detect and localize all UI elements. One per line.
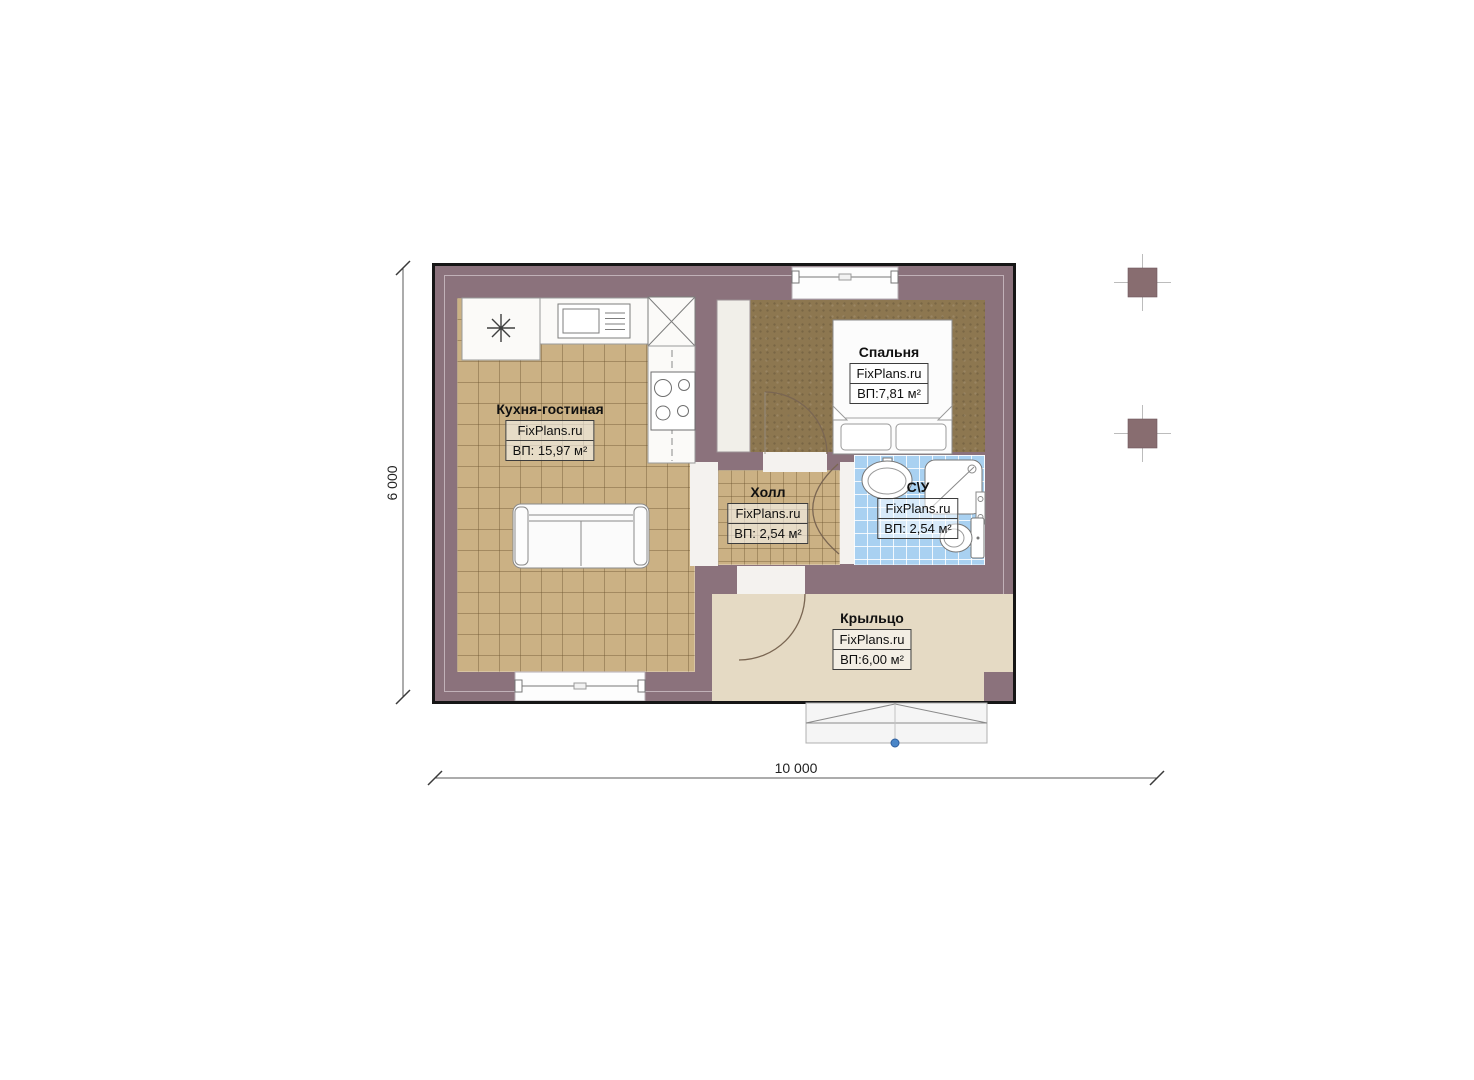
doorway-bathroom [840,462,854,564]
room-label-kitchen: Кухня-гостиная FixPlans.ru ВП: 15,97 м² [496,401,603,461]
site-column-1 [1114,254,1171,311]
opening-living-hall [690,462,718,566]
room-name: Спальня [849,344,928,360]
entrance-steps [806,703,987,747]
watermark: FixPlans.ru [878,499,957,518]
watermark-box: FixPlans.ru ВП: 2,54 м² [727,503,808,544]
room-name: Крыльцо [832,610,911,626]
room-name: С\У [877,479,958,495]
floor-plan-page: Кухня-гостиная FixPlans.ru ВП: 15,97 м² … [0,0,1474,1080]
room-name: Холл [727,484,808,500]
room-label-hall: Холл FixPlans.ru ВП: 2,54 м² [727,484,808,544]
entry-marker [891,739,899,747]
room-name: Кухня-гостиная [496,401,603,417]
porch-corner-column [984,672,1013,701]
area-value: ВП: 2,54 м² [728,523,807,543]
area-value: ВП:6,00 м² [833,649,910,669]
room-label-bathroom: С\У FixPlans.ru ВП: 2,54 м² [877,479,958,539]
living-room-floor [457,298,695,672]
watermark: FixPlans.ru [833,630,910,649]
dimension-height-label: 6 000 [384,465,400,500]
watermark: FixPlans.ru [728,504,807,523]
watermark-box: FixPlans.ru ВП: 2,54 м² [877,498,958,539]
watermark-box: FixPlans.ru ВП: 15,97 м² [506,420,595,461]
watermark-box: FixPlans.ru ВП:7,81 м² [849,363,928,404]
area-value: ВП: 2,54 м² [878,518,957,538]
doorway-bedroom [763,452,827,472]
watermark: FixPlans.ru [507,421,594,440]
watermark-box: FixPlans.ru ВП:6,00 м² [832,629,911,670]
doorway-porch [737,566,805,594]
area-value: ВП: 15,97 м² [507,440,594,460]
room-label-bedroom: Спальня FixPlans.ru ВП:7,81 м² [849,344,928,404]
dimension-width-label: 10 000 [775,760,818,776]
area-value: ВП:7,81 м² [850,383,927,403]
site-column-2 [1114,405,1171,462]
watermark: FixPlans.ru [850,364,927,383]
room-label-porch: Крыльцо FixPlans.ru ВП:6,00 м² [832,610,911,670]
